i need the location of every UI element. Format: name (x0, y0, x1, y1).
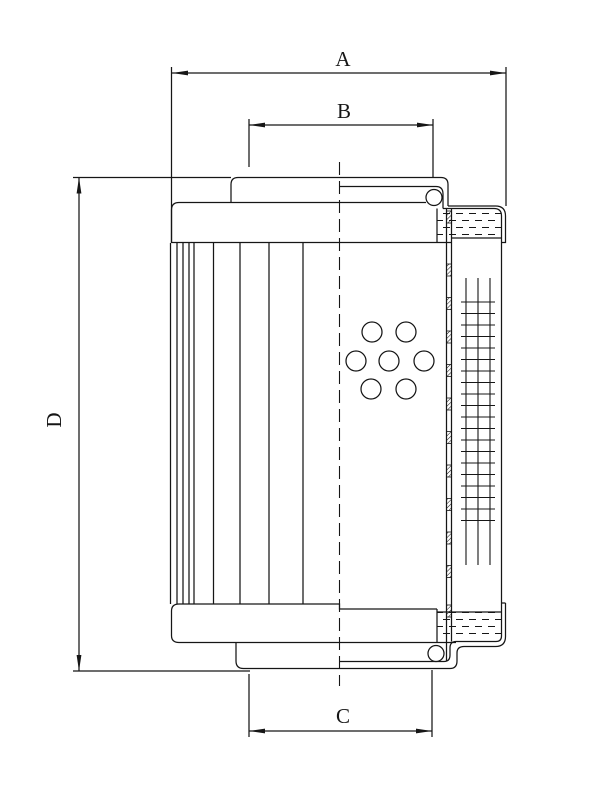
perforation-hole (362, 322, 382, 342)
part-outline (172, 178, 506, 669)
technical-drawing-page: ABCD (0, 0, 612, 792)
media-hatch-block (447, 465, 452, 477)
bottom-cap-left-bottom (172, 611, 457, 643)
dimension-d: D (42, 178, 250, 672)
media-hatch-block (447, 211, 452, 223)
arrowhead-left (249, 729, 265, 734)
bottom-cap-top-edge (172, 604, 438, 611)
drawing-root: ABCD (42, 47, 506, 737)
dimension-label-d: D (42, 412, 66, 427)
support-mesh (461, 278, 495, 565)
perforation-hole (346, 351, 366, 371)
o-ring-bottom (428, 646, 444, 662)
o-ring-top (426, 190, 442, 206)
media-hatch-block (447, 605, 452, 617)
top-cap-body (172, 203, 427, 244)
dimension-b: B (249, 99, 433, 178)
perforation-hole (396, 322, 416, 342)
dimension-label-b: B (337, 99, 351, 123)
media-hatch-block (447, 499, 452, 511)
media-hatch-block (447, 365, 452, 377)
media-hatch-block (447, 532, 452, 544)
media-hatch-block (447, 331, 452, 343)
dimension-label-a: A (335, 47, 351, 71)
arrowhead-right (416, 729, 432, 734)
shell-inner-wall (340, 216, 502, 662)
perforation-hole (379, 351, 399, 371)
perforation-holes (346, 322, 434, 399)
perforation-hole (361, 379, 381, 399)
arrowhead-left (249, 123, 265, 128)
perforation-hole (396, 379, 416, 399)
media-hatch-block (447, 298, 452, 310)
arrowhead-left (172, 71, 188, 76)
arrowhead-bottom (77, 655, 82, 671)
media-hatch-block (447, 264, 452, 276)
spigot-left-edge (236, 643, 244, 669)
dimension-c: C (249, 670, 432, 737)
dimension-label-c: C (336, 704, 350, 728)
pleated-media-lines (171, 243, 304, 604)
arrowhead-right (417, 123, 433, 128)
arrowhead-top (77, 178, 82, 194)
media-hatch-block (447, 398, 452, 410)
media-edge-strip (447, 209, 452, 662)
media-hatch-block (447, 566, 452, 578)
media-hatch-block (447, 432, 452, 444)
filter-element-drawing: ABCD (0, 0, 612, 792)
perforation-hole (414, 351, 434, 371)
arrowhead-right (490, 71, 506, 76)
